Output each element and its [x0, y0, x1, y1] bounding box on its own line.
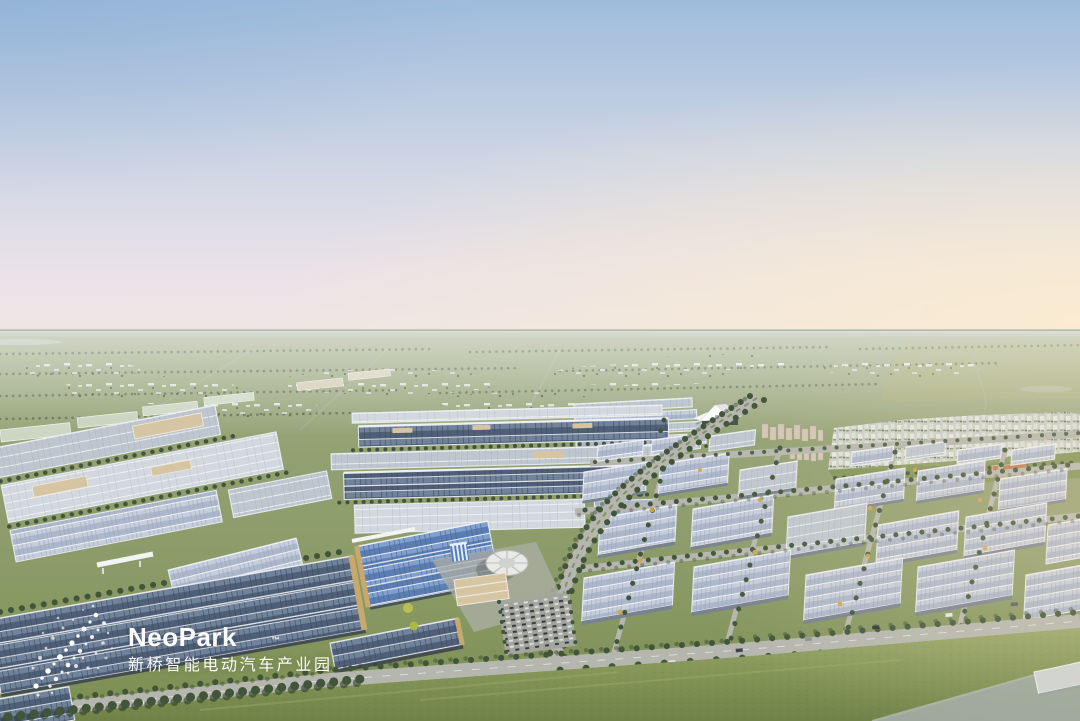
brand-subtitle: 新桥智能电动汽车产业园 [128, 658, 333, 674]
sky [0, 0, 1080, 336]
dot-constellation-logo-icon [28, 598, 120, 702]
brand-logo: NeoPark™ 新桥智能电动汽车产业园 [28, 598, 333, 702]
warm-light-overlay [400, 330, 1080, 721]
aerial-render: NeoPark™ 新桥智能电动汽车产业园 [0, 0, 1080, 721]
brand-name: NeoPark [128, 622, 237, 652]
trademark-symbol: ™ [271, 636, 281, 645]
